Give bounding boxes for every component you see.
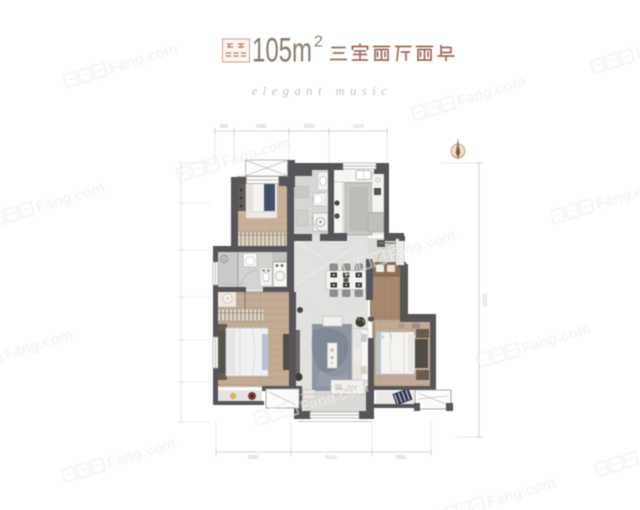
svg-text:2: 2 [314, 34, 323, 51]
svg-text:2495: 2495 [255, 124, 266, 130]
svg-text:985: 985 [220, 124, 229, 130]
svg-text:elegant music: elegant music [252, 84, 393, 98]
svg-text:11150: 11150 [481, 293, 487, 306]
svg-text:3080: 3080 [247, 455, 258, 461]
svg-text:3020: 3020 [303, 124, 314, 130]
svg-text:105m: 105m [252, 32, 312, 70]
svg-text:2850: 2850 [395, 455, 406, 461]
svg-text:2820: 2820 [352, 124, 363, 130]
svg-text:4420: 4420 [325, 455, 336, 461]
